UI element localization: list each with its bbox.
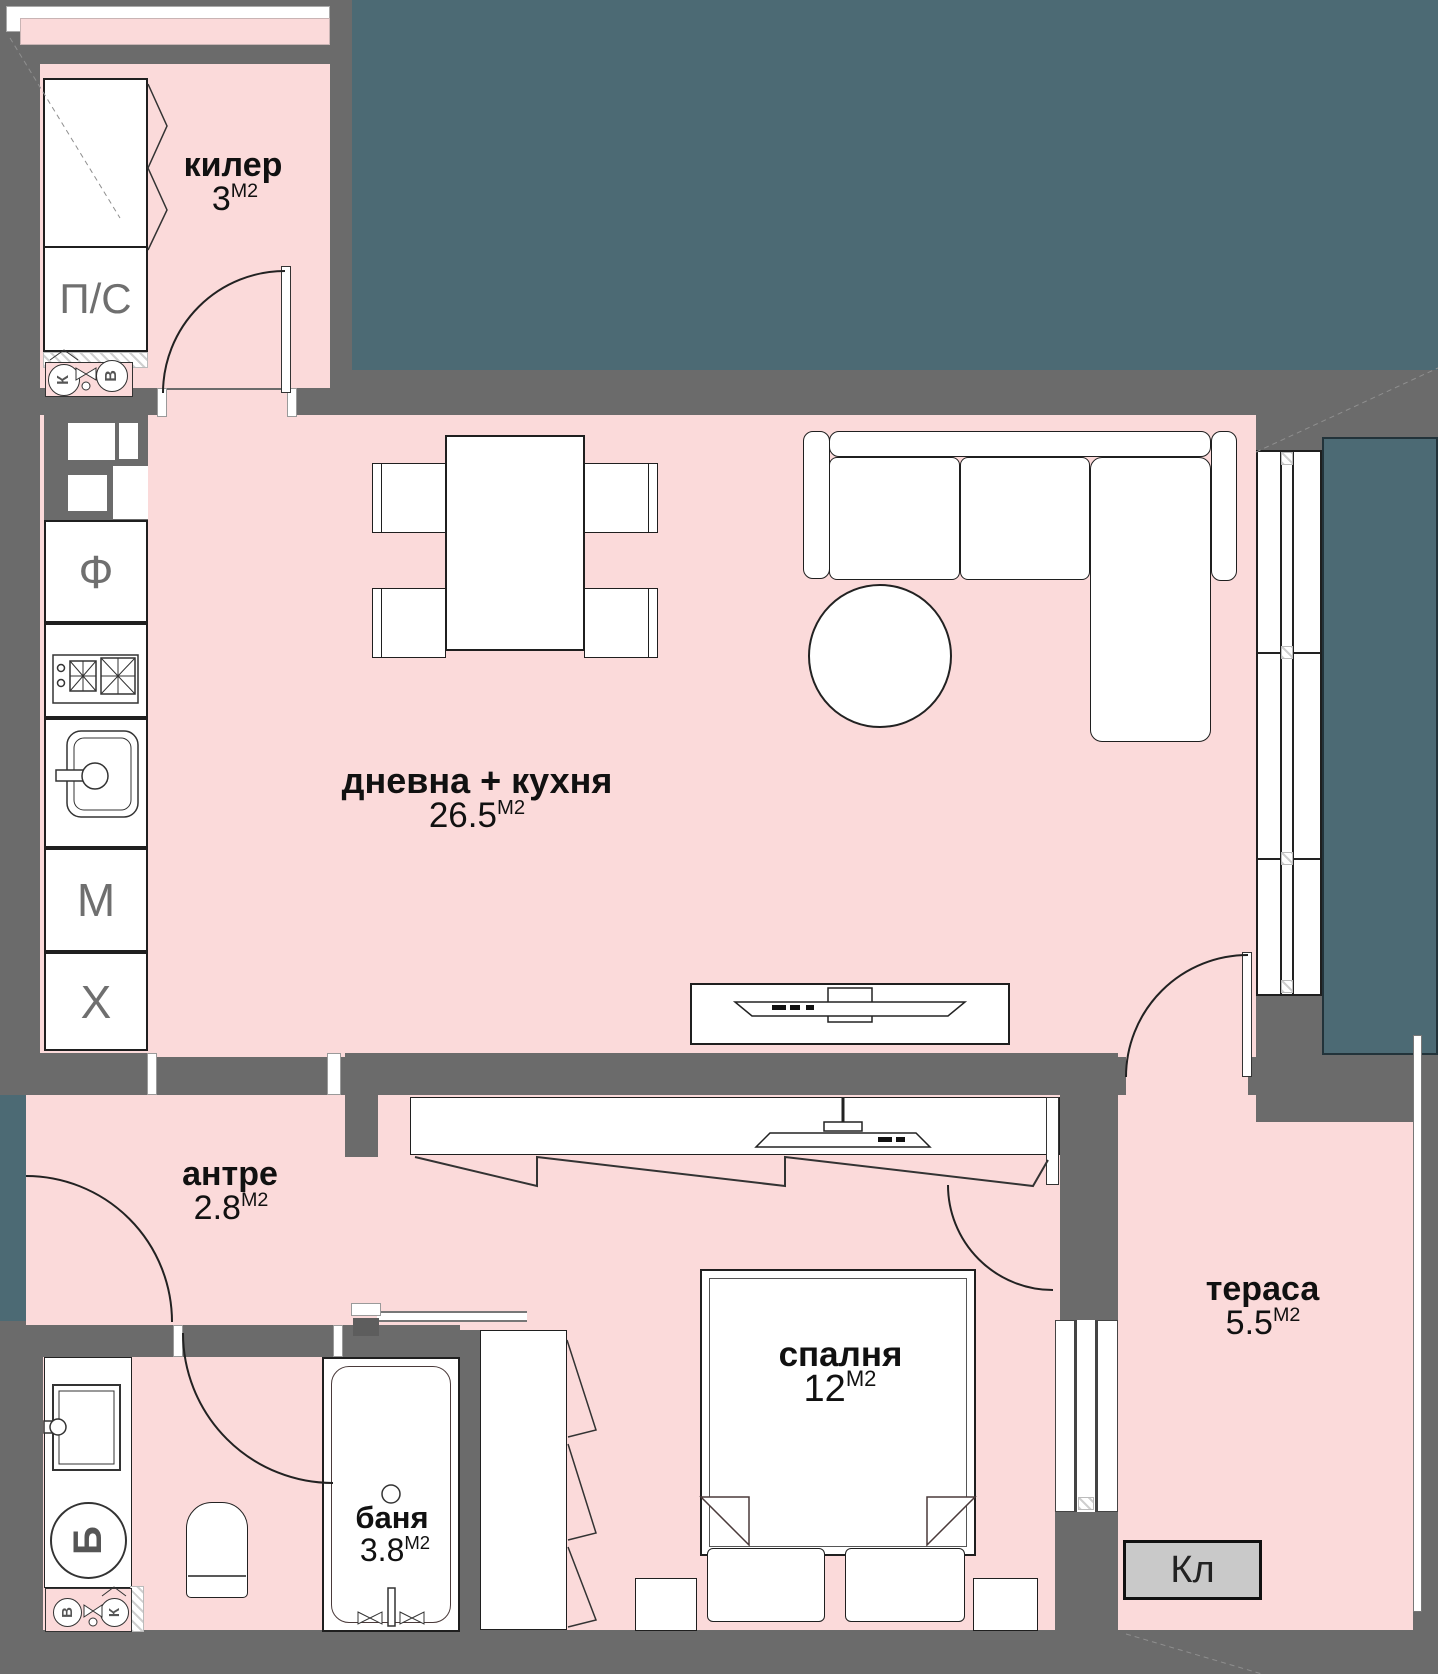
wall-bedroom-right-lower <box>1055 1510 1118 1632</box>
sofa-backrest-right <box>1211 431 1237 581</box>
wall-below-window <box>1256 995 1322 1122</box>
terrace-door-glass <box>1075 1320 1097 1512</box>
chair-backrest <box>372 463 382 533</box>
pillow <box>707 1548 825 1622</box>
wall-top <box>352 370 1438 415</box>
chair-backrest <box>648 588 658 658</box>
shaft-duct <box>68 423 115 460</box>
dishwasher-label: М <box>44 848 148 952</box>
sofa-chaise <box>1090 457 1211 742</box>
sofa-armrest-left <box>803 431 830 579</box>
terrace-railing <box>1413 1035 1422 1612</box>
sofa-seat <box>829 457 960 580</box>
tv-cabinet <box>690 983 1010 1045</box>
balcony-slab-inner <box>20 18 330 45</box>
room-area-kiler: 3М2 <box>165 180 305 219</box>
meter-cold-bath: К <box>100 1598 129 1627</box>
bedroom-wardrobe <box>410 1097 1060 1155</box>
stove-cabinet <box>44 623 148 718</box>
chair-backrest <box>648 463 658 533</box>
dining-table <box>445 435 585 651</box>
washer-dryer-label: П/С <box>43 246 148 352</box>
room-area-spalnya: 12М2 <box>770 1368 910 1411</box>
sofa-seat <box>960 457 1090 580</box>
terrace-door-jamb <box>1097 1320 1118 1512</box>
meter-hot-kiler: В <box>96 360 128 392</box>
sink-cabinet <box>44 718 148 848</box>
kiler-door-opening <box>157 390 287 415</box>
rail-block <box>353 1318 379 1336</box>
chair <box>372 588 446 658</box>
nightstand <box>973 1578 1038 1631</box>
meter-hot-bath: В <box>53 1598 82 1627</box>
door-jamb <box>327 1053 341 1095</box>
wall-living-bottom-left <box>0 1053 147 1095</box>
hall-wardrobe <box>480 1330 567 1630</box>
chair <box>372 463 446 533</box>
window-joint <box>1281 980 1293 993</box>
floor-plan: П/С К В Ф М Х Б В К <box>0 0 1438 1674</box>
wall-corner-bedroom-right <box>1060 1053 1118 1165</box>
door-jamb <box>147 1053 157 1095</box>
room-area-terasa: 5.5М2 <box>1188 1304 1338 1343</box>
door-jamb <box>333 1325 343 1357</box>
door-jamb <box>157 388 167 417</box>
terrace-living-door-leaf <box>1242 952 1252 1077</box>
terrace-door-joint <box>1078 1497 1094 1510</box>
chair <box>584 588 658 658</box>
window-joint <box>1281 852 1293 865</box>
ac-unit: Кл <box>1123 1540 1262 1600</box>
ac-label: Кл <box>1170 1549 1214 1592</box>
bedroom-door-leaf <box>1046 1097 1059 1185</box>
bathtub-inner <box>331 1366 451 1623</box>
wall-bottom <box>0 1630 1438 1674</box>
chair <box>584 463 658 533</box>
door-jamb <box>173 1325 183 1357</box>
window-joint <box>1281 452 1293 465</box>
shaft-duct <box>68 475 107 511</box>
wall-bath-top-left <box>43 1325 183 1357</box>
outside-area-corridor <box>0 1095 26 1321</box>
meter-cold-kiler: К <box>48 364 80 396</box>
shaft-duct <box>119 423 138 459</box>
window-joint <box>1281 646 1293 659</box>
sofa-backrest-top <box>829 431 1211 457</box>
fridge-label: Х <box>44 952 148 1051</box>
outside-area-top <box>352 0 1438 370</box>
nightstand <box>635 1578 697 1631</box>
bed-inner-line <box>709 1278 967 1547</box>
room-label-banya: баня <box>330 1500 454 1536</box>
chair-backrest <box>372 588 382 658</box>
terrace-door-jamb <box>1055 1320 1075 1512</box>
window-glazing <box>1280 452 1294 994</box>
pantry-shelf <box>43 78 148 248</box>
oven-label: Ф <box>44 520 148 623</box>
kiler-door-leaf <box>281 266 291 393</box>
shaft-duct <box>113 466 148 519</box>
rail-jamb <box>351 1303 381 1316</box>
wall-living-bottom <box>345 1053 1117 1095</box>
wall-bath-east <box>460 1330 480 1632</box>
wall-stub-hall <box>345 1095 378 1157</box>
boiler: Б <box>50 1502 127 1579</box>
toilet <box>186 1502 248 1598</box>
room-area-living: 26.5М2 <box>387 796 567 836</box>
room-area-antre: 2.8М2 <box>156 1189 306 1228</box>
sliding-rail <box>377 1311 527 1322</box>
bath-hatch-strip <box>130 1586 144 1632</box>
wall-above-window <box>1256 415 1322 450</box>
pillow <box>845 1548 965 1622</box>
outside-area-right <box>1322 437 1438 1055</box>
room-area-banya: 3.8М2 <box>330 1532 460 1569</box>
living-terrace-door-opening <box>1126 1057 1248 1095</box>
